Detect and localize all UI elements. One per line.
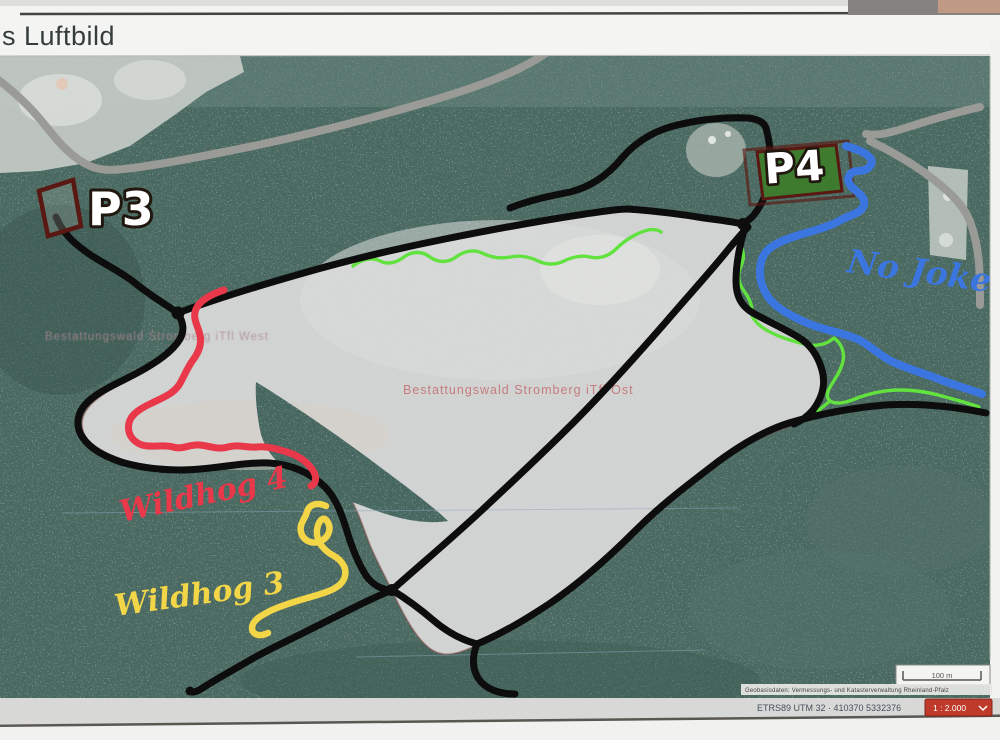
trail-end-dot bbox=[186, 687, 195, 696]
building-spot bbox=[725, 131, 731, 137]
coordinates-text: ETRS89 UTM 32 · 410370 5332376 bbox=[757, 703, 901, 713]
label-p4: P4 bbox=[763, 141, 826, 194]
bright-spot bbox=[939, 233, 953, 247]
forest-light-patch-2 bbox=[690, 550, 950, 670]
printed-map-photo: Bestattungswald Stromberg iTfl West Best… bbox=[0, 0, 1000, 740]
clearing-near-p4 bbox=[686, 123, 746, 177]
desk-object bbox=[938, 0, 1000, 13]
bright-spot bbox=[114, 60, 186, 100]
map-area: Bestattungswald Stromberg iTfl West Best… bbox=[0, 50, 1000, 720]
attribution-text: Geobasisdaten: Vermessungs- und Kataster… bbox=[745, 688, 949, 694]
page-title: s Luftbild bbox=[2, 21, 115, 51]
aerial-map: Bestattungswald Stromberg iTfl West Best… bbox=[0, 0, 1000, 740]
building-spot bbox=[708, 136, 716, 144]
rooftop-spot bbox=[56, 78, 68, 90]
junction-dot bbox=[172, 307, 185, 320]
junction-dot bbox=[737, 218, 749, 230]
clearing-bright-spot-2 bbox=[540, 235, 660, 305]
printed-label-west: Bestattungswald Stromberg iTfl West bbox=[45, 331, 269, 343]
scale-bar-label: 100 m bbox=[932, 671, 953, 680]
page-right-margin bbox=[990, 40, 1000, 740]
parking-p3-outline bbox=[39, 180, 81, 236]
scale-select-value: 1 : 2.000 bbox=[933, 703, 966, 713]
label-p3: P3 bbox=[88, 182, 154, 236]
junction-dot bbox=[386, 584, 398, 596]
